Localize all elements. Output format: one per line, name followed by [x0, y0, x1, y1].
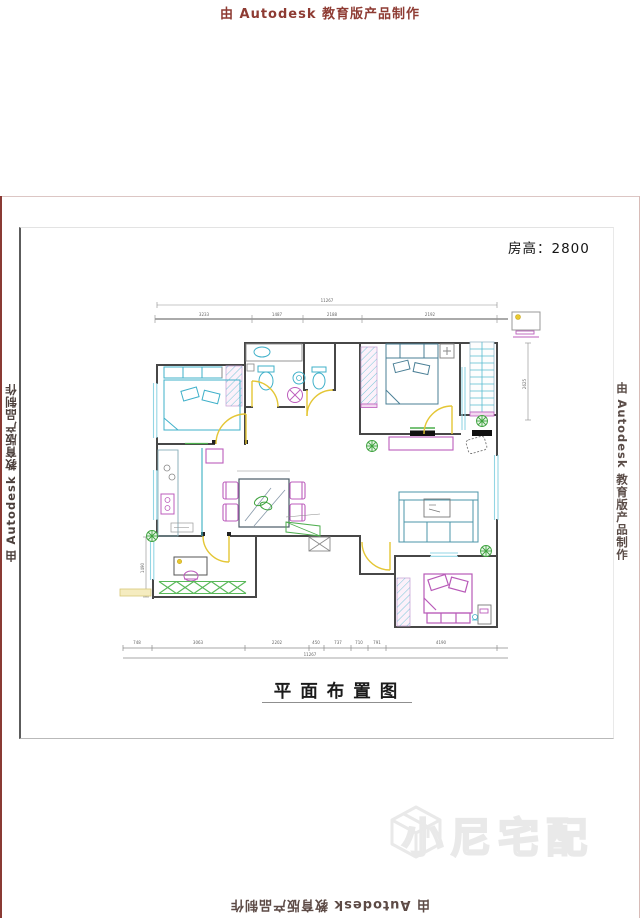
left-dimension: 1490 — [140, 537, 149, 597]
kitchen — [158, 444, 223, 537]
walls — [153, 343, 497, 627]
svg-text:3063: 3063 — [193, 640, 204, 645]
svg-text:2188: 2188 — [327, 312, 338, 317]
svg-text:710: 710 — [355, 640, 363, 645]
svg-text:3233: 3233 — [199, 312, 210, 317]
bottom-dimensions: 748 3063 2202 450 737 710 791 4190 11267 — [123, 640, 508, 658]
svg-text:737: 737 — [334, 640, 342, 645]
floor-plan-canvas: 11267 3233 1487 2188 2192 2625 1490 — [0, 0, 640, 918]
living-room-furniture — [389, 428, 492, 542]
brand-cube-icon — [388, 804, 444, 860]
svg-text:748: 748 — [133, 640, 141, 645]
right-dimension: 2625 — [522, 343, 531, 420]
window-sill — [120, 589, 151, 596]
study-balcony — [159, 557, 246, 594]
bedroom2-furniture — [386, 344, 454, 404]
dining-set — [223, 471, 305, 527]
master-bedroom-furniture — [424, 574, 491, 624]
svg-text:791: 791 — [373, 640, 381, 645]
top-dimensions: 11267 3233 1487 2188 2192 — [155, 298, 508, 323]
svg-text:11267: 11267 — [321, 298, 334, 303]
washer-symbol — [512, 312, 540, 337]
svg-text:450: 450 — [312, 640, 320, 645]
svg-text:1487: 1487 — [272, 312, 283, 317]
svg-text:4190: 4190 — [436, 640, 447, 645]
cad-sheet: 由 Autodesk 教育版产品制作 由 Autodesk 教育版产品制作 由 … — [0, 0, 640, 918]
svg-text:2625: 2625 — [522, 378, 527, 389]
bathroom-fixtures — [246, 344, 326, 403]
svg-text:11267: 11267 — [304, 652, 317, 657]
brand-watermark: 小尼宅配 — [388, 804, 594, 864]
svg-text:1490: 1490 — [140, 562, 145, 573]
svg-text:2202: 2202 — [272, 640, 283, 645]
shoe-cabinet — [286, 514, 330, 551]
svg-text:2192: 2192 — [425, 312, 436, 317]
